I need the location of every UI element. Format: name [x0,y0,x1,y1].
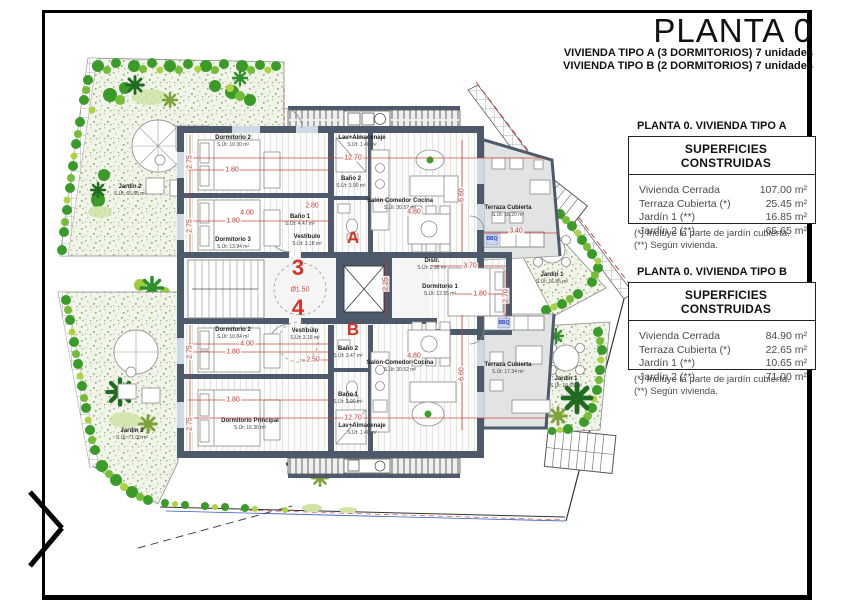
row-label: Terraza Cubierta (*) [639,344,731,358]
row-value: 16.85 m² [766,211,807,225]
plan-subtitle-a: VIVIENDA TIPO A (3 DORMITORIOS) 7 unidad… [563,47,813,60]
legend-b-row: Jardín 1 (**) 10.65 m² [639,357,807,371]
row-label: Jardín 1 (**) [639,357,695,371]
plan-subtitle-b: VIVIENDA TIPO B (2 DORMITORIOS) 7 unidad… [563,60,813,73]
note-line: (*) Incluye la parte de jardín cubierta. [634,374,824,386]
title-block: PLANTA 0 VIVIENDA TIPO A (3 DORMITORIOS)… [563,14,813,72]
legend-b-title: SUPERFICIES CONSTRUIDAS [629,283,815,321]
row-label: Vivienda Cerrada [639,330,720,344]
legend-b-heading: PLANTA 0. VIVIENDA TIPO B [637,266,817,278]
legend-b-box: SUPERFICIES CONSTRUIDAS Vivienda Cerrada… [628,282,816,370]
legend-b-notes: (*) Incluye la parte de jardín cubierta.… [634,374,824,397]
row-label: Vivienda Cerrada [639,184,720,198]
note-line: (**) Según vivienda. [634,240,824,252]
legend-a-notes: (*) Incluye la parte de jardín cubierta.… [634,228,824,251]
note-line: (**) Según vivienda. [634,386,824,398]
plan-title: PLANTA 0 [563,14,813,47]
legend-b-row: Terraza Cubierta (*) 22.65 m² [639,344,807,358]
row-value: 25.45 m² [766,198,807,212]
row-value: 10.65 m² [766,357,807,371]
row-value: 107.00 m² [760,184,807,198]
legend-a-heading: PLANTA 0. VIVIENDA TIPO A [637,120,817,132]
legend-a-title: SUPERFICIES CONSTRUIDAS [629,137,815,175]
row-label: Terraza Cubierta (*) [639,198,731,212]
row-label: Jardín 1 (**) [639,211,695,225]
legend-b-row: Vivienda Cerrada 84.90 m² [639,330,807,344]
note-line: (*) Incluye la parte de jardín cubierta. [634,228,824,240]
drawing-sheet: Dormitorio 2S.Út: 10.30 m²Dormitorio 3S.… [0,0,850,614]
legend-a-row: Vivienda Cerrada 107.00 m² [639,184,807,198]
legend-a-box: SUPERFICIES CONSTRUIDAS Vivienda Cerrada… [628,136,816,224]
row-value: 22.65 m² [766,344,807,358]
legend-a-row: Jardín 1 (**) 16.85 m² [639,211,807,225]
legend-a-row: Terraza Cubierta (*) 25.45 m² [639,198,807,212]
row-value: 84.90 m² [766,330,807,344]
